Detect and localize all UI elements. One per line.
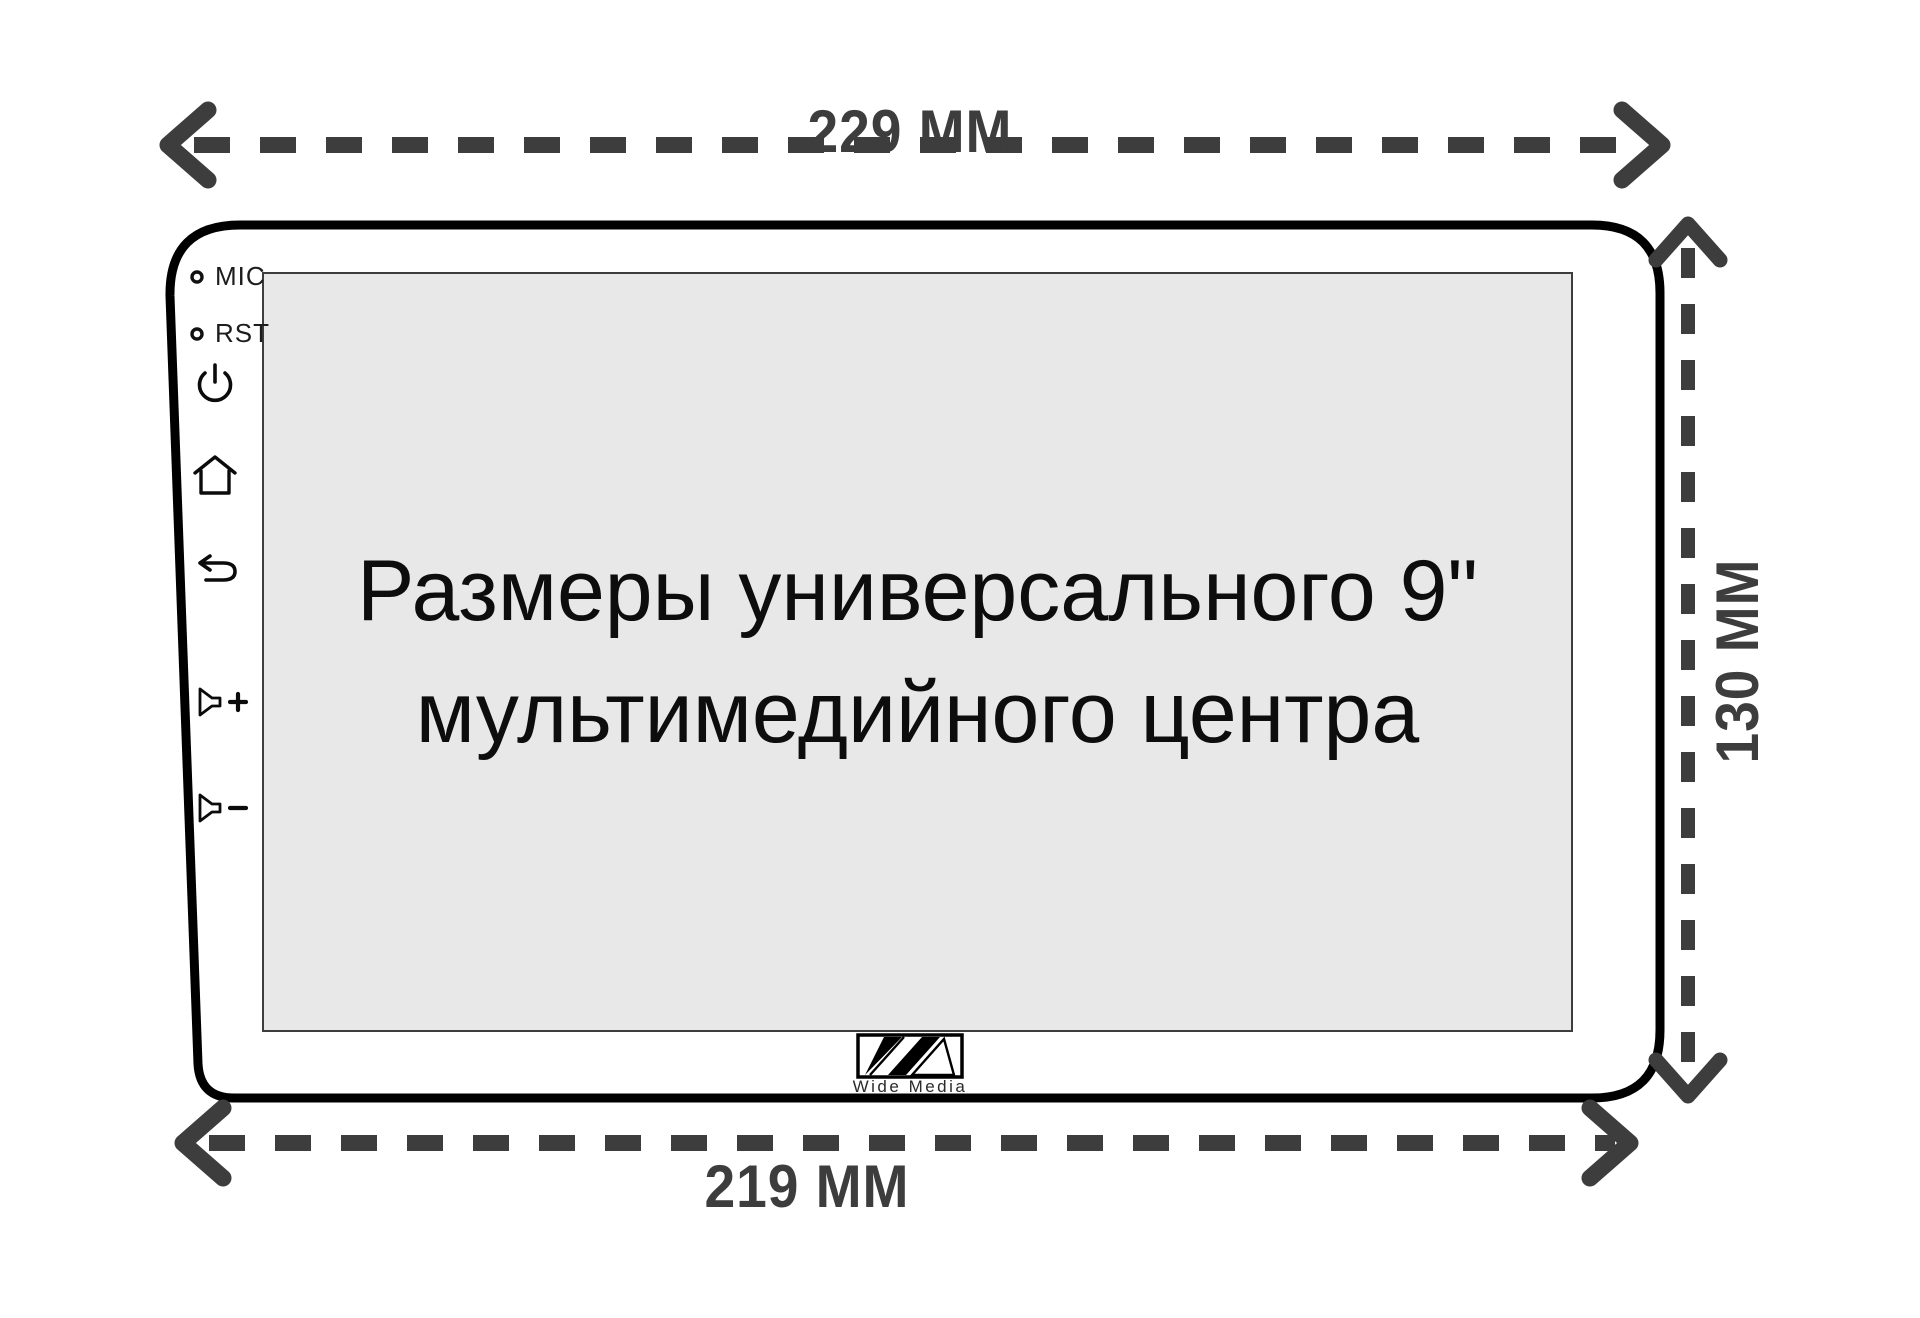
right-height-label: 130 MM [1706,523,1768,799]
dimension-diagram: 229 MM Размеры универсального 9" мультим… [0,0,1920,1318]
home-icon [191,453,239,497]
screen-caption-line1: Размеры универсального 9" [357,530,1478,652]
wide-media-logo [856,1033,964,1079]
back-icon [189,552,241,590]
volume-down-icon [194,790,252,826]
reset-hole-icon [188,325,206,343]
arrowhead-down-icon [1656,1060,1720,1096]
mic-row: MIC [188,261,266,292]
power-icon [192,362,238,408]
bottom-width-label: 219 MM [669,1155,945,1217]
volume-up-icon [194,684,252,720]
mic-label: MIC [215,261,266,292]
rst-row: RST [188,318,270,349]
device-screen: Размеры универсального 9" мультимедийног… [262,272,1573,1032]
screen-caption-line2: мультимедийного центра [416,652,1419,774]
mic-hole-icon [188,268,206,286]
rst-label: RST [215,318,270,349]
brand-block: Wide Media [830,1033,990,1097]
